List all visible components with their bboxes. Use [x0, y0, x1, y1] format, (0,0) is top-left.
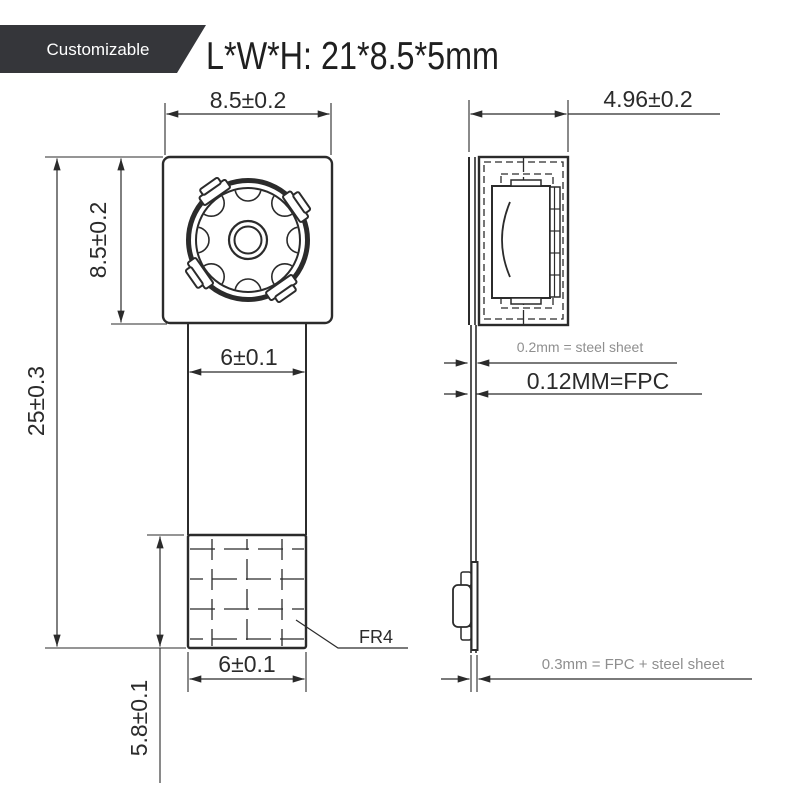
- page-title: L*W*H: 21*8.5*5mm: [206, 35, 499, 78]
- lens-ring-inner: [196, 188, 300, 292]
- dim-stiffener-width-label: 6±0.1: [218, 651, 275, 677]
- dim-side-thickness-label: 4.96±0.2: [603, 86, 692, 112]
- side-lens-block: [492, 180, 560, 304]
- side-view: 4.96±0.2 0.2mm = steel sheet 0.12MM=FPC …: [441, 86, 752, 692]
- tail-stiffened-end: [472, 562, 478, 650]
- fr4-stiffener: [188, 535, 306, 648]
- callout-fpc: 0.12MM=FPC: [444, 368, 702, 394]
- badge-label: Customizable: [47, 40, 150, 59]
- dim-front-total-height-label: 25±0.3: [23, 366, 49, 436]
- callout-total-thickness-label: 0.3mm = FPC + steel sheet: [542, 656, 725, 673]
- callout-fpc-label: 0.12MM=FPC: [527, 368, 670, 394]
- technical-drawing: Customizable L*W*H: 21*8.5*5mm: [0, 0, 800, 800]
- callout-steel-sheet: 0.2mm = steel sheet: [444, 339, 677, 363]
- dim-front-width: 8.5±0.2: [165, 87, 331, 155]
- steel-sheet-strip: [469, 157, 475, 325]
- contact-strip: [550, 187, 560, 297]
- callout-total-thickness: 0.3mm = FPC + steel sheet: [441, 655, 752, 692]
- dim-fpc-width: 6±0.1: [190, 344, 305, 372]
- dim-side-thickness: 4.96±0.2: [469, 86, 720, 152]
- front-view: FR4 8.5±0.2 8.5±0.2 25±0.3 6±0.1: [23, 87, 408, 783]
- fr4-label: FR4: [359, 627, 393, 647]
- dim-stiffener-height-label: 5.8±0.1: [126, 680, 152, 757]
- dim-front-height: 8.5±0.2: [45, 157, 167, 324]
- fpc-connector: [453, 572, 471, 640]
- camera-module-spec-sheet: Customizable L*W*H: 21*8.5*5mm: [0, 0, 800, 800]
- dim-stiffener-width: 6±0.1: [188, 651, 306, 692]
- callout-steel-sheet-label: 0.2mm = steel sheet: [517, 339, 644, 355]
- dim-front-height-label: 8.5±0.2: [85, 202, 111, 279]
- dim-fpc-width-label: 6±0.1: [220, 344, 277, 370]
- lens-aperture-inner: [235, 227, 262, 254]
- fr4-hatch: [190, 539, 304, 646]
- fr4-leader: FR4: [296, 620, 408, 648]
- lens-assembly: [182, 174, 313, 305]
- badge: Customizable: [0, 25, 206, 73]
- dim-stiffener-height: 5.8±0.1: [126, 535, 184, 783]
- fpc-tail: [453, 325, 478, 653]
- dim-front-width-label: 8.5±0.2: [210, 87, 287, 113]
